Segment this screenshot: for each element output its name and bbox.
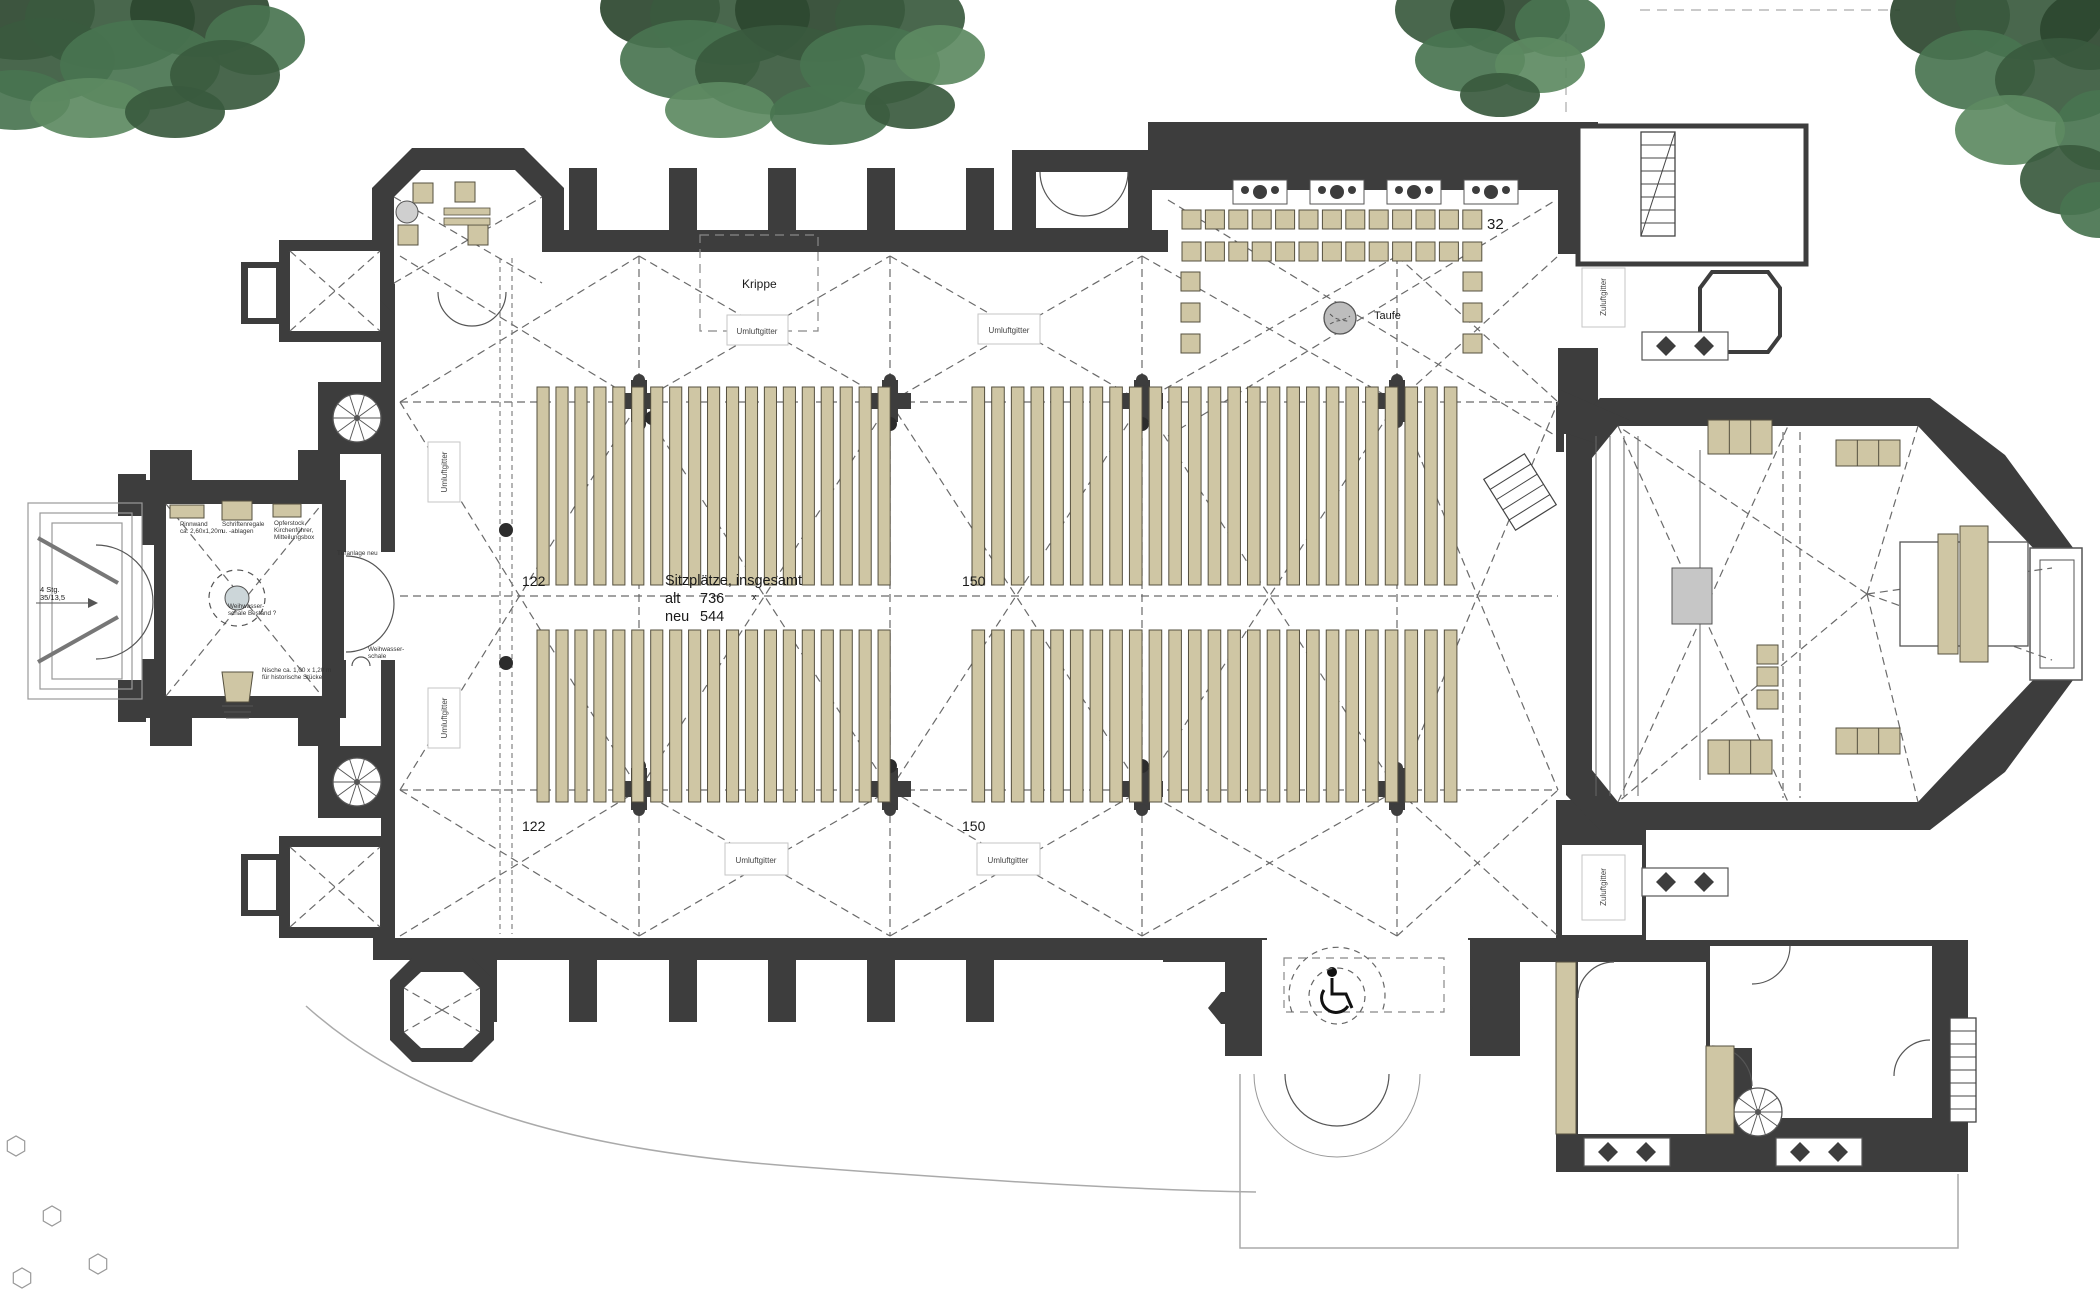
circle <box>1425 186 1433 194</box>
krippe-label: Krippe <box>742 277 777 291</box>
pew-strip <box>992 387 1005 585</box>
chair <box>1463 303 1482 322</box>
pew-strip <box>802 387 814 585</box>
pew-strip <box>575 630 587 802</box>
pew-strip <box>840 387 852 585</box>
floor <box>1262 940 1470 1074</box>
balustrade <box>1776 1138 1862 1166</box>
stool <box>1757 690 1778 709</box>
paving-stone <box>13 1268 30 1288</box>
umluftgitter-label: Umluftgitter <box>989 326 1030 335</box>
pew-strip <box>1188 630 1201 802</box>
church-floor-plan: Sitzplätze, insgesamt alt 736 neu 544 x … <box>0 0 2100 1290</box>
seat-count-chapel: 32 <box>1487 216 1504 233</box>
circle <box>1136 804 1148 816</box>
wall <box>966 168 994 232</box>
weihwasser-bestand-note: schale Bestand ? <box>228 610 277 617</box>
pew-strip <box>821 387 833 585</box>
umluftgitter-label: Umluftgitter <box>440 451 449 492</box>
pew-strip <box>859 630 871 802</box>
pew-strip <box>1267 630 1280 802</box>
colonnade-base <box>1407 185 1421 199</box>
pew-strip <box>575 387 587 585</box>
chair <box>1181 303 1200 322</box>
zuluftgitter-label: Zuluftgitter <box>1599 278 1608 316</box>
chair <box>1252 242 1271 261</box>
nave-center-mark: x <box>752 592 757 602</box>
pew-strip <box>1208 387 1221 585</box>
circle <box>1271 186 1279 194</box>
pew-strip <box>1444 630 1457 802</box>
schriftenregale-note: u. -ablagen <box>222 528 254 535</box>
pew-strip <box>651 387 663 585</box>
pew-strip <box>1149 630 1162 802</box>
wall <box>298 714 340 746</box>
exterior-step <box>1337 1074 1420 1157</box>
wall <box>867 168 895 232</box>
chair <box>1276 242 1295 261</box>
chair <box>1346 210 1365 229</box>
tree-foliage <box>665 82 775 138</box>
circle <box>1318 186 1326 194</box>
circle <box>1391 804 1403 816</box>
floor <box>248 268 276 318</box>
floor <box>1752 946 1932 1118</box>
altar <box>1938 534 1958 654</box>
pew-strip <box>1346 630 1359 802</box>
zuluftgitter-label: Zuluftgitter <box>1599 868 1608 906</box>
chair <box>1393 210 1412 229</box>
pew-strip <box>1011 387 1024 585</box>
sacristy-room <box>1578 126 1806 264</box>
chair <box>1322 210 1341 229</box>
pew-strip <box>821 630 833 802</box>
pew-strip <box>1149 387 1162 585</box>
circle <box>1502 186 1510 194</box>
stairs-note: 35/13,5 <box>40 593 65 602</box>
pew-strip <box>1346 387 1359 585</box>
pew-strip <box>1090 630 1103 802</box>
nische-note: Nische ca. 1,00 x 1,20 m <box>262 667 331 674</box>
seat-count-left-front: 122 <box>522 573 546 589</box>
pew-strip <box>1051 387 1064 585</box>
balustrade <box>1584 1138 1670 1166</box>
pew-strip <box>1287 387 1300 585</box>
pew-strip <box>1090 387 1103 585</box>
choir-bench <box>1836 728 1900 754</box>
pew-strip <box>1307 387 1320 585</box>
wall <box>966 958 994 1022</box>
opferstock-note: Mitteilungsbox <box>274 534 315 541</box>
pew-strip <box>556 630 568 802</box>
pew-strip <box>764 630 776 802</box>
pew-strip <box>1031 630 1044 802</box>
schriftenregale-note: Schriftenregale <box>222 521 265 528</box>
porch-chair <box>413 183 433 203</box>
pew-strip <box>859 387 871 585</box>
shelf <box>444 208 490 215</box>
pew-strip <box>1248 387 1261 585</box>
tree-foliage <box>125 86 225 138</box>
apse-niche <box>2040 560 2074 668</box>
porch-chair <box>468 225 488 245</box>
pew-strip <box>556 387 568 585</box>
chair <box>1252 210 1271 229</box>
pew-strip <box>537 387 549 585</box>
baptismal-font <box>1324 302 1356 334</box>
wall <box>569 168 597 232</box>
circle <box>884 804 896 816</box>
pew-strip <box>1188 387 1201 585</box>
chair <box>1463 272 1482 291</box>
colonnade-base <box>1330 185 1344 199</box>
chair <box>1369 242 1388 261</box>
pew-strip <box>1129 630 1142 802</box>
opferstock-note: Kirchenführer, <box>274 527 313 534</box>
pew-strip <box>1129 387 1142 585</box>
pew-strip <box>689 630 701 802</box>
pew-strip <box>1366 630 1379 802</box>
pew-strip <box>594 387 606 585</box>
floor <box>344 552 406 660</box>
colonnade-base <box>1484 185 1498 199</box>
chair <box>1463 210 1482 229</box>
circle <box>884 374 896 386</box>
pew-strip <box>670 387 682 585</box>
pew-strip <box>745 387 757 585</box>
pew-strip <box>1405 630 1418 802</box>
pew-strip <box>1070 630 1083 802</box>
pew-strip <box>802 630 814 802</box>
choir-bench <box>1708 740 1772 774</box>
chapel-furniture <box>222 501 252 520</box>
pew-strip <box>745 630 757 802</box>
pew-strip <box>783 387 795 585</box>
chapel-furniture <box>273 504 301 517</box>
pew-strip <box>1326 387 1339 585</box>
opferstock-note: Opferstock, <box>274 520 306 527</box>
umluftgitter-label: Umluftgitter <box>737 327 778 336</box>
floor-plan-stage: Sitzplätze, insgesamt alt 736 neu 544 x … <box>0 0 2100 1290</box>
seating-summary-title: Sitzplätze, insgesamt <box>665 573 802 589</box>
pew-strip <box>613 387 625 585</box>
pew-strip <box>613 630 625 802</box>
paving-stone <box>89 1254 106 1274</box>
wall <box>867 958 895 1022</box>
colonnade-base <box>1253 185 1267 199</box>
chair <box>1182 242 1201 261</box>
umluftgitter-label: Umluftgitter <box>736 856 777 865</box>
column <box>499 656 513 670</box>
cabinet <box>1556 962 1576 1134</box>
porch-chair <box>455 182 475 202</box>
stool <box>1757 645 1778 664</box>
wall <box>669 168 697 232</box>
cabinet <box>1706 1046 1734 1134</box>
circle <box>1241 186 1249 194</box>
pew-strip <box>708 630 720 802</box>
pew-strip <box>651 630 663 802</box>
circle <box>1395 186 1403 194</box>
pew-strip <box>1267 387 1280 585</box>
pew-strip <box>840 630 852 802</box>
wall <box>150 714 192 746</box>
pew-strip <box>1444 387 1457 585</box>
nische-note: für historische Stücke <box>262 674 323 681</box>
wall <box>373 936 1172 960</box>
weihwasser-bestand-note: Weihwasser- <box>228 603 264 610</box>
pew-strip <box>1051 630 1064 802</box>
umluftgitter-label: Umluftgitter <box>988 856 1029 865</box>
chair <box>1416 210 1435 229</box>
pew-strip <box>1169 387 1182 585</box>
chair <box>1439 242 1458 261</box>
chair <box>1322 242 1341 261</box>
circle <box>1348 186 1356 194</box>
pew-strip <box>594 630 606 802</box>
tree-foliage <box>1460 73 1540 117</box>
floor <box>96 545 154 659</box>
pew-strip <box>1031 387 1044 585</box>
chair <box>1205 242 1224 261</box>
pinnwand-note: Pinnwand <box>180 521 208 528</box>
chair <box>1182 210 1201 229</box>
pew-strip <box>783 630 795 802</box>
shelf <box>444 218 490 225</box>
wall <box>669 958 697 1022</box>
choir-bench <box>1708 420 1772 454</box>
chapel-furniture <box>170 505 204 518</box>
circle <box>633 804 645 816</box>
circle <box>1136 374 1148 386</box>
wall <box>1468 938 1520 1056</box>
wall <box>569 958 597 1022</box>
tree-foliage <box>895 25 985 85</box>
chair <box>1439 210 1458 229</box>
chair <box>1229 210 1248 229</box>
circle <box>1472 186 1480 194</box>
pew-strip <box>1307 630 1320 802</box>
pew-strip <box>1011 630 1024 802</box>
pew-strip <box>1110 630 1123 802</box>
paving-stone <box>43 1206 60 1226</box>
floor <box>1710 946 1754 1048</box>
seat-count-right-front: 150 <box>962 573 986 589</box>
pew-strip <box>1287 630 1300 802</box>
pew-strip <box>1110 387 1123 585</box>
paving-stone <box>7 1136 24 1156</box>
pew-strip <box>1228 387 1241 585</box>
floor <box>1578 962 1706 1134</box>
floor <box>248 860 276 910</box>
chair <box>1299 242 1318 261</box>
chair <box>1276 210 1295 229</box>
seating-neu-value: 544 <box>700 609 724 625</box>
chair <box>1229 242 1248 261</box>
weihwasser-note: Weihwasser- <box>368 646 404 653</box>
pew-strip <box>632 630 644 802</box>
spiral-stair <box>354 779 360 785</box>
pew-strip <box>1425 387 1438 585</box>
niche <box>222 672 253 702</box>
pew-strip <box>1326 630 1339 802</box>
umluftgitter-label: Umluftgitter <box>440 697 449 738</box>
seating-alt-value: 736 <box>700 591 724 607</box>
pew-strip <box>708 387 720 585</box>
weihwasser-note: schale <box>368 653 387 660</box>
chair <box>1299 210 1318 229</box>
wall <box>768 168 796 232</box>
chair <box>1369 210 1388 229</box>
door-swing <box>1285 1074 1337 1126</box>
pew-strip <box>632 387 644 585</box>
circle <box>633 374 645 386</box>
wall <box>298 450 340 482</box>
seat-count-left-rear: 122 <box>522 818 546 834</box>
pew-strip <box>1366 387 1379 585</box>
pew-strip <box>1405 387 1418 585</box>
chair <box>1393 242 1412 261</box>
chair <box>1346 242 1365 261</box>
altar <box>1960 526 1988 662</box>
chair <box>1205 210 1224 229</box>
seat-count-right-rear: 150 <box>962 818 986 834</box>
chair <box>1181 272 1200 291</box>
chair <box>1181 334 1200 353</box>
stool <box>1757 667 1778 686</box>
pew-strip <box>670 630 682 802</box>
column <box>499 523 513 537</box>
pinnwand-note: ca. 2,60x1,20m <box>180 528 223 535</box>
pew-strip <box>1385 387 1398 585</box>
pew-strip <box>1169 630 1182 802</box>
pew-strip <box>972 387 985 585</box>
chair <box>1416 242 1435 261</box>
seating-alt-label: alt <box>665 591 680 607</box>
spiral-stair <box>1755 1109 1761 1115</box>
pew-strip <box>1248 630 1261 802</box>
pew-strip <box>537 630 549 802</box>
ambo <box>1672 568 1712 624</box>
wall <box>150 450 192 482</box>
seating-neu-label: neu <box>665 609 689 625</box>
tueranlage-note: Türanlage neu <box>337 550 378 557</box>
pew-strip <box>878 387 890 585</box>
porch-chair <box>398 225 418 245</box>
spiral-stair <box>354 415 360 421</box>
chair <box>1463 242 1482 261</box>
circle <box>1391 374 1403 386</box>
chair <box>1463 334 1482 353</box>
pew-strip <box>689 387 701 585</box>
exterior-step <box>1254 1074 1337 1157</box>
pew-strip <box>992 630 1005 802</box>
pew-strip <box>726 387 738 585</box>
choir-bench <box>1836 440 1900 466</box>
balustrade <box>1642 868 1728 896</box>
pew-strip <box>1208 630 1221 802</box>
balustrade <box>1642 332 1728 360</box>
pew-strip <box>764 387 776 585</box>
round-table <box>396 201 418 223</box>
pew-strip <box>1425 630 1438 802</box>
pew-strip <box>1385 630 1398 802</box>
pew-strip <box>1070 387 1083 585</box>
taufe-label: Taufe <box>1374 310 1401 322</box>
tree-foliage <box>865 81 955 129</box>
door-swing <box>1337 1074 1389 1126</box>
pew-strip <box>1228 630 1241 802</box>
pew-strip <box>878 630 890 802</box>
pew-strip <box>726 630 738 802</box>
wall <box>768 958 796 1022</box>
pew-strip <box>972 630 985 802</box>
